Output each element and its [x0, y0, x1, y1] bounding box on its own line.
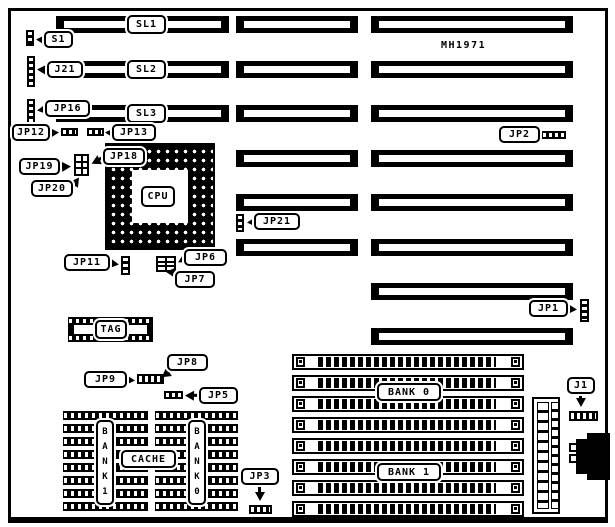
jp19-callout-label: JP19	[19, 158, 60, 175]
keyboard-connector-pin	[569, 454, 578, 463]
cache-chip-row	[63, 411, 148, 420]
jp20-callout-label: JP20	[31, 180, 73, 197]
simm-socket	[292, 480, 524, 496]
jp5-callout-label: JP5	[199, 387, 238, 404]
part-number: MH1971	[441, 40, 486, 51]
jp3-callout-label: JP3	[241, 468, 279, 485]
jp13-callout-label: JP13	[112, 124, 156, 141]
isa-slot-row4-right	[371, 150, 573, 167]
cache-bank1-label: BANK1	[96, 420, 114, 505]
cache-chip-row	[155, 411, 238, 420]
simm-bank0-label: BANK 0	[377, 383, 441, 401]
isa-slot-row6-right	[371, 239, 573, 256]
s1-callout-label: S1	[44, 31, 73, 48]
slot-label-sl1: SL1	[127, 15, 166, 34]
jp21-jumper	[236, 214, 244, 232]
jp12-callout-label: JP12	[12, 124, 50, 141]
isa-slot-row3-right	[371, 105, 573, 122]
isa-slot-row6-middle	[236, 239, 358, 256]
jp11-callout-label: JP11	[64, 254, 110, 271]
jp16-callout-label: JP16	[45, 100, 90, 117]
slot-label-sl2: SL2	[127, 60, 166, 79]
keyboard-connector-pin	[569, 443, 578, 452]
simm-socket	[292, 354, 524, 370]
jp7-callout-label: JP7	[175, 271, 215, 288]
cache-label: CACHE	[121, 450, 176, 468]
jp3-jumper	[249, 505, 272, 514]
jp18-callout-label: JP18	[103, 148, 145, 165]
jp2-jumper	[541, 131, 566, 139]
isa-slot-row5-middle	[236, 194, 358, 211]
isa-slot-row7-right	[371, 283, 573, 300]
jp1-connector	[580, 299, 589, 322]
isa-slot-row2-right	[371, 61, 573, 78]
jp13-jumper	[87, 128, 104, 136]
jp2-callout-label: JP2	[499, 126, 540, 143]
tag-label: TAG	[95, 320, 127, 339]
isa-slot-row5-right	[371, 194, 573, 211]
s1-switch	[26, 30, 34, 46]
j1-jumper	[569, 411, 598, 421]
jp9-callout-label: JP9	[84, 371, 127, 388]
jp6-callout-label: JP6	[184, 249, 227, 266]
isa-slot-row8-right	[371, 328, 573, 345]
jp21-callout-label: JP21	[254, 213, 300, 230]
jp8-callout-label: JP8	[167, 354, 208, 371]
j21-connector	[27, 56, 35, 87]
cache-bank0-label: BANK0	[188, 420, 206, 505]
isa-slot-row1-middle	[236, 16, 358, 33]
simm-socket	[292, 438, 524, 454]
isa-slot-row3-middle	[236, 105, 358, 122]
simm-bank1-label: BANK 1	[377, 463, 441, 481]
isa-slot-row1-right	[371, 16, 573, 33]
power-connector	[532, 397, 560, 514]
cpu-label: CPU	[141, 186, 175, 207]
jp16-connector	[27, 99, 35, 126]
slot-label-sl3: SL3	[127, 104, 166, 123]
j1-callout-label: J1	[567, 377, 595, 394]
jp18-jp19-jp20-block	[74, 154, 89, 176]
simm-socket	[292, 417, 524, 433]
isa-slot-row2-middle	[236, 61, 358, 78]
isa-slot-row4-middle	[236, 150, 358, 167]
jp12-jumper	[61, 128, 78, 136]
jp11-jumper	[121, 256, 130, 275]
simm-socket	[292, 501, 524, 517]
j21-callout-label: J21	[47, 61, 83, 78]
motherboard-diagram: MH1971 CPU TAG BANK1 BANK0 CACHE BANK 0 …	[0, 0, 615, 527]
keyboard-connector	[587, 433, 610, 480]
jp5-jumper	[164, 391, 183, 399]
jp1-callout-label: JP1	[529, 300, 568, 317]
